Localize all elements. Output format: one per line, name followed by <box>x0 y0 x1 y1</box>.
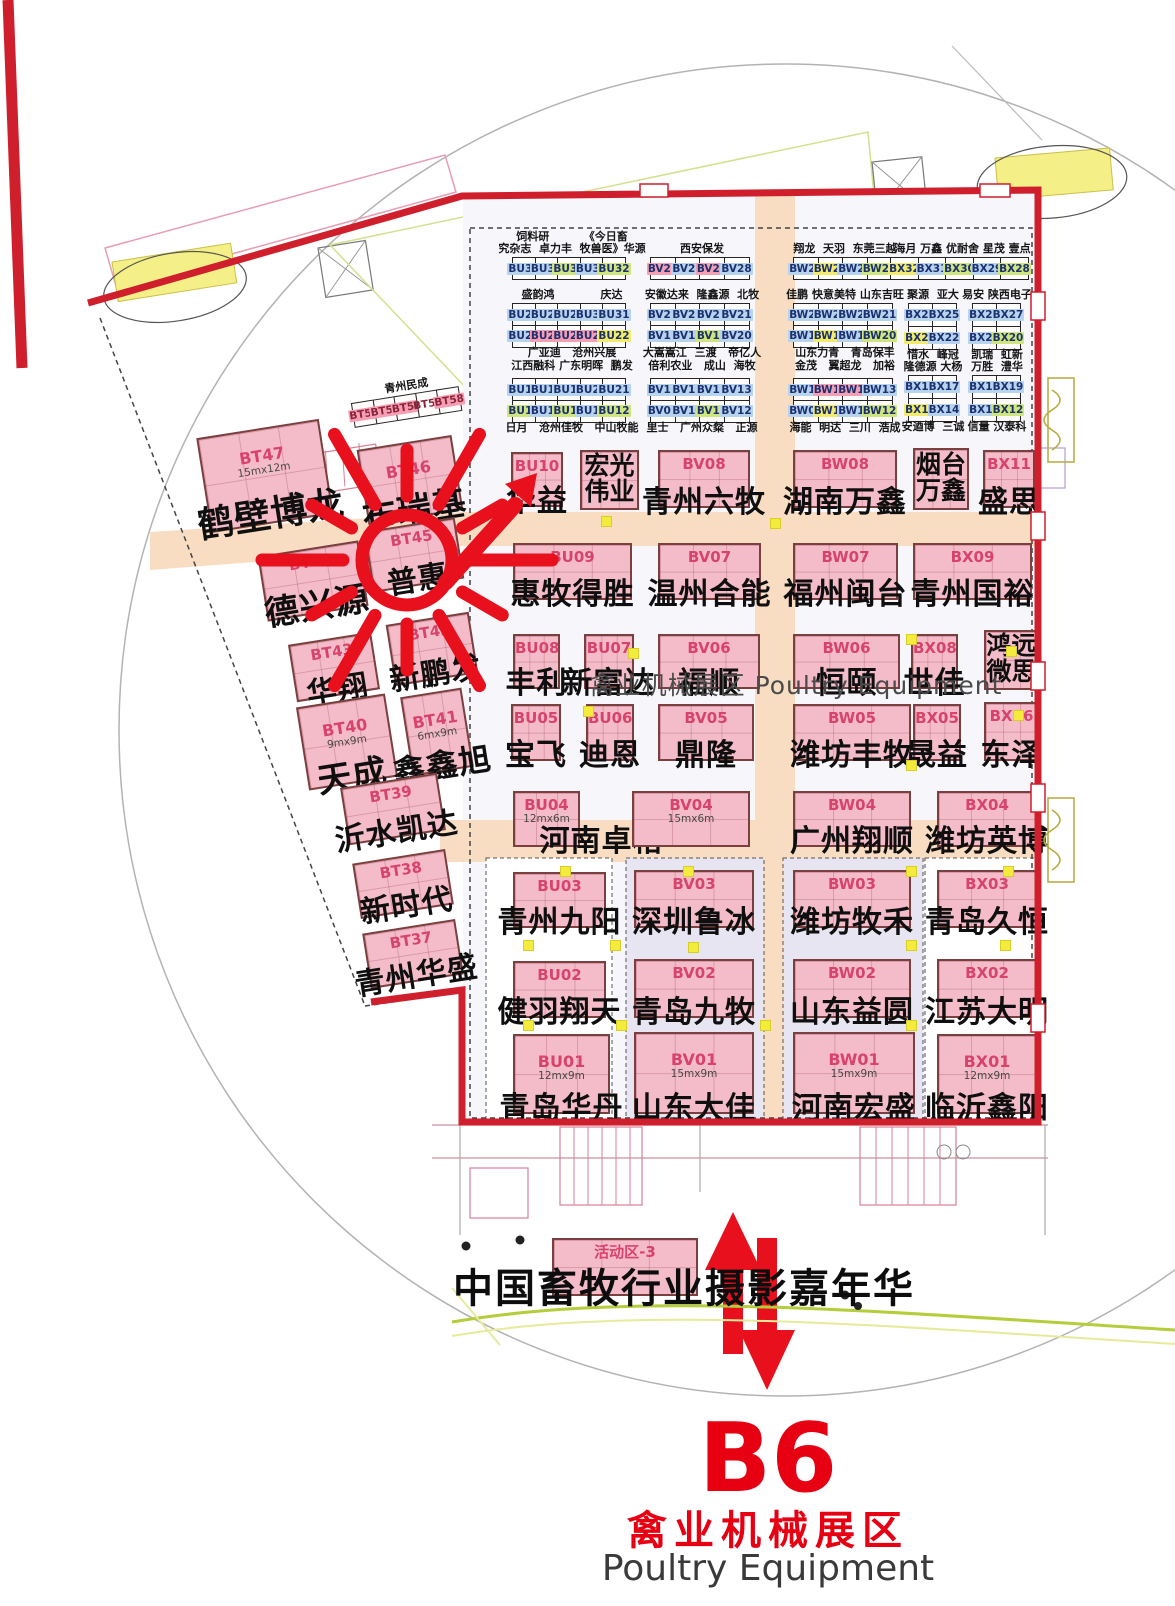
highlight-sun-marker <box>262 434 552 685</box>
greenery-lines <box>452 1288 1175 1345</box>
wall-door-notches <box>640 184 1045 1032</box>
entrance-double-arrow <box>705 1212 795 1390</box>
hall-boundary-red-wall <box>88 190 1038 1122</box>
exhibition-floor-plan: 饲料研 《今日畜究杂志 卓力丰 牧兽医》华源BU36BU35BU34BU33BU… <box>0 0 1175 1606</box>
tree-dots <box>462 1236 863 1311</box>
map-foreground-marks <box>0 0 1175 1606</box>
left-edge-red-wall <box>8 0 22 368</box>
stair-brackets-right <box>1044 378 1074 882</box>
